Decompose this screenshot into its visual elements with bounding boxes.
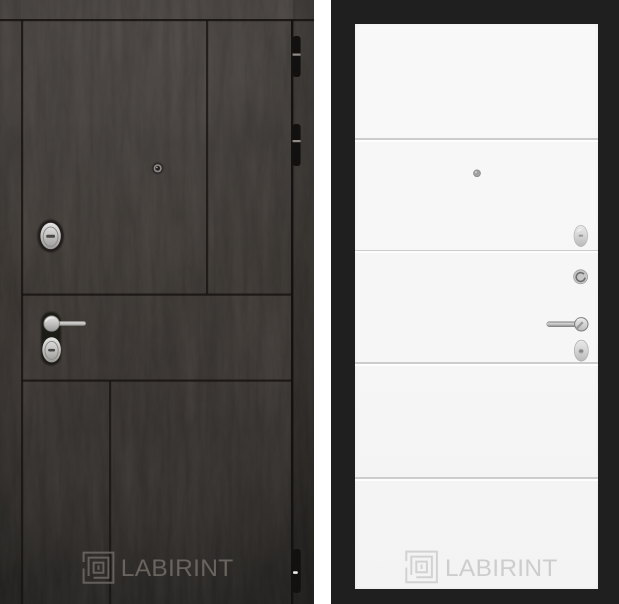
svg-text:LABIRINT: LABIRINT	[121, 555, 234, 582]
svg-text:LABIRINT: LABIRINT	[445, 555, 558, 582]
